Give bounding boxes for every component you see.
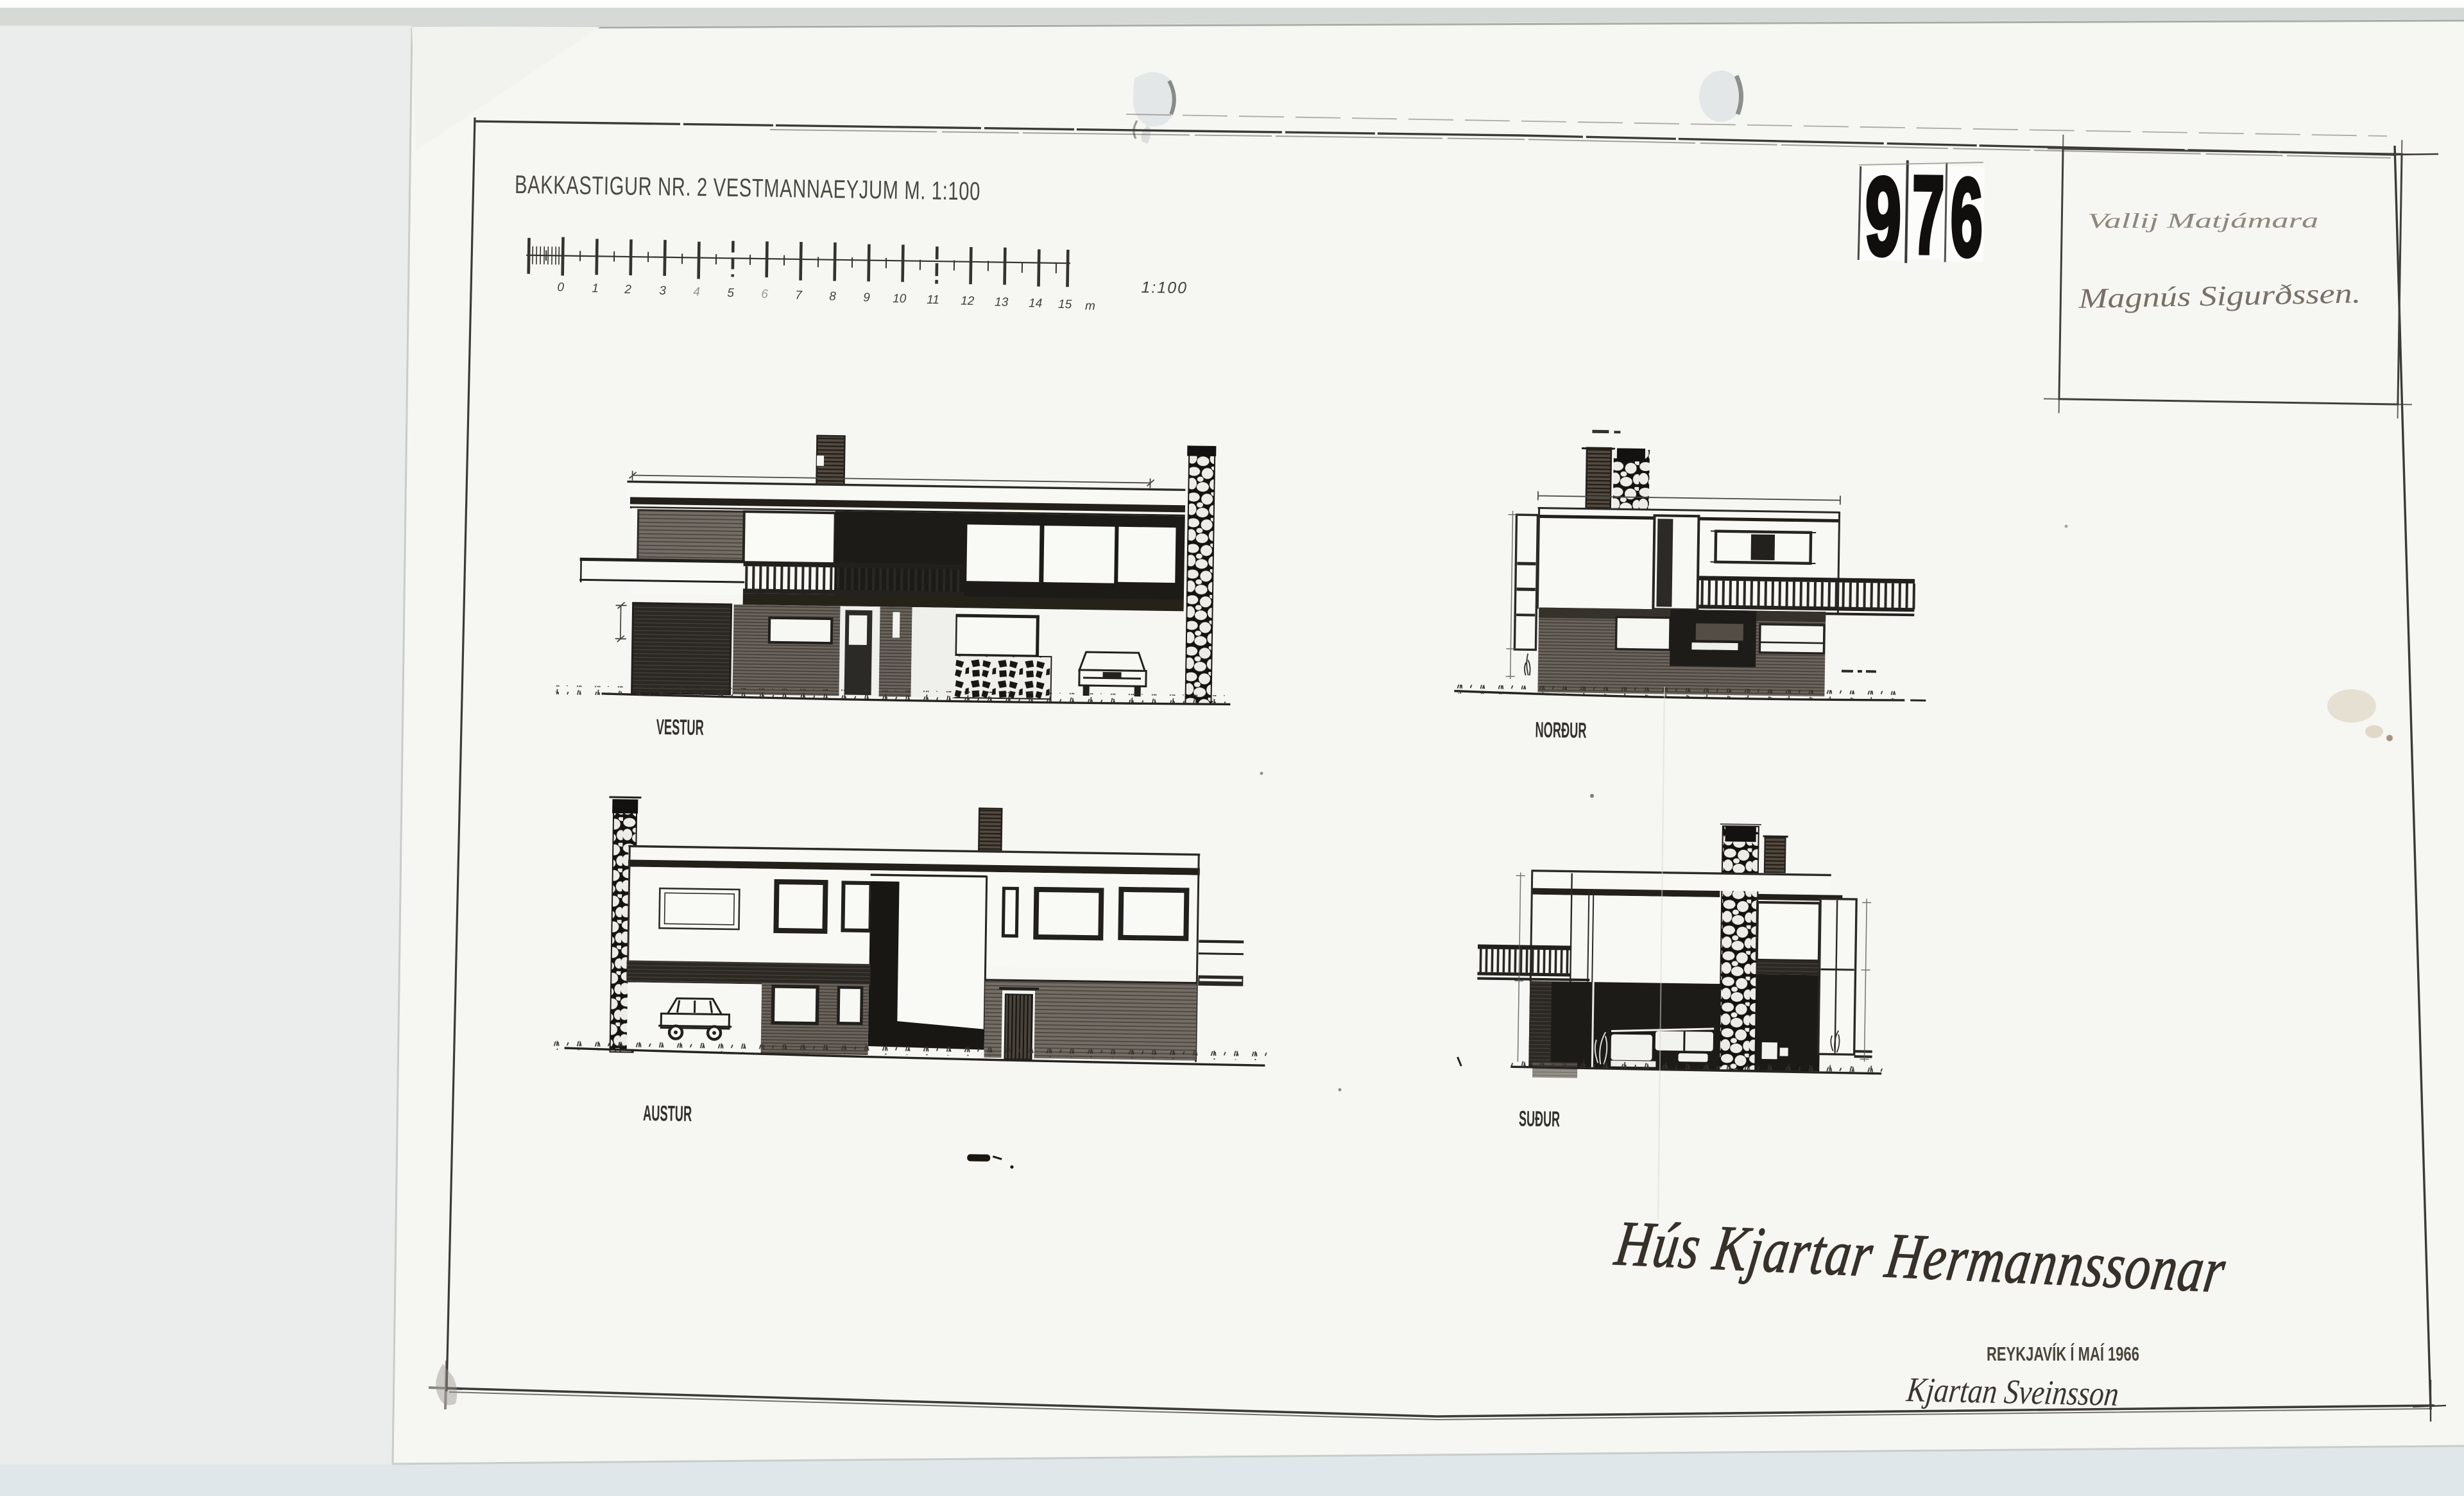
svg-text:9: 9 bbox=[863, 291, 870, 304]
svg-text:12: 12 bbox=[961, 295, 975, 308]
svg-text:10: 10 bbox=[893, 292, 907, 305]
svg-text:9: 9 bbox=[1865, 155, 1902, 279]
svg-text:5: 5 bbox=[727, 286, 734, 300]
svg-text:11: 11 bbox=[927, 293, 939, 307]
svg-text:SUĐUR: SUĐUR bbox=[1519, 1106, 1561, 1131]
svg-text:Vallij Matjámara: Vallij Matjámara bbox=[2087, 209, 2318, 233]
svg-text:VESTUR: VESTUR bbox=[656, 715, 705, 740]
svg-text:8: 8 bbox=[829, 290, 836, 304]
svg-text:m: m bbox=[1085, 300, 1095, 313]
svg-text:3: 3 bbox=[659, 284, 666, 298]
svg-text:REYKJAVÍK Í MAÍ 1966: REYKJAVÍK Í MAÍ 1966 bbox=[1987, 1343, 2139, 1365]
svg-text:2: 2 bbox=[624, 283, 631, 297]
svg-text:15: 15 bbox=[1058, 298, 1072, 311]
svg-text:1: 1 bbox=[592, 282, 599, 295]
svg-text:AUSTUR: AUSTUR bbox=[643, 1101, 692, 1126]
svg-text:14: 14 bbox=[1029, 297, 1042, 310]
svg-text:7: 7 bbox=[1912, 153, 1945, 277]
svg-text:NORĐUR: NORĐUR bbox=[1535, 718, 1587, 743]
svg-text:7: 7 bbox=[795, 289, 803, 302]
svg-text:Kjartan Sveinsson: Kjartan Sveinsson bbox=[1904, 1370, 2121, 1413]
svg-text:4: 4 bbox=[693, 285, 700, 298]
svg-text:1:100: 1:100 bbox=[1141, 279, 1188, 297]
svg-text:6: 6 bbox=[761, 288, 768, 301]
svg-text:13: 13 bbox=[995, 295, 1009, 309]
svg-text:0: 0 bbox=[557, 280, 564, 294]
svg-text:Magnús Sigurðssen.: Magnús Sigurðssen. bbox=[2078, 277, 2361, 314]
svg-text:6: 6 bbox=[1950, 156, 1983, 280]
